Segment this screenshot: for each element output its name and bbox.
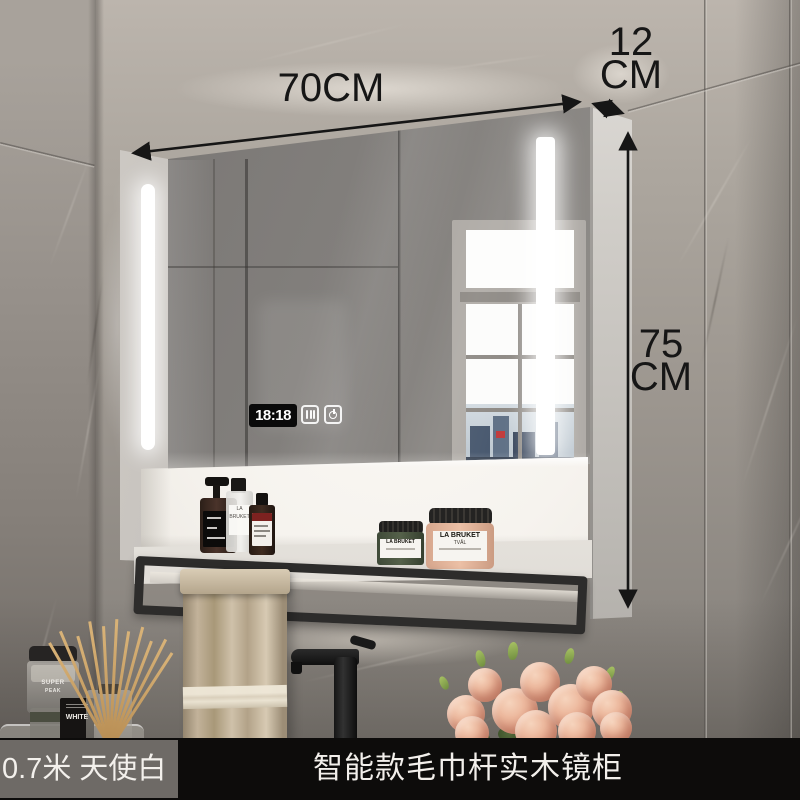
height-dimension-label: 75 CM bbox=[627, 328, 695, 394]
depth-arrow bbox=[594, 104, 622, 113]
depth-unit: CM bbox=[595, 59, 667, 92]
caption-bar: 0.7米 天使白 智能款毛巾杆实木镜柜 bbox=[0, 738, 800, 800]
height-unit: CM bbox=[627, 361, 695, 394]
variant-badge: 0.7米 天使白 bbox=[0, 740, 178, 798]
product-title: 智能款毛巾杆实木镜柜 bbox=[178, 740, 758, 798]
depth-dimension-label: 12 CM bbox=[595, 26, 667, 92]
product-image: 18:18 LA BRUKET bbox=[0, 0, 800, 800]
width-dimension-label: 70CM bbox=[266, 72, 396, 105]
dimension-arrows bbox=[0, 0, 800, 800]
